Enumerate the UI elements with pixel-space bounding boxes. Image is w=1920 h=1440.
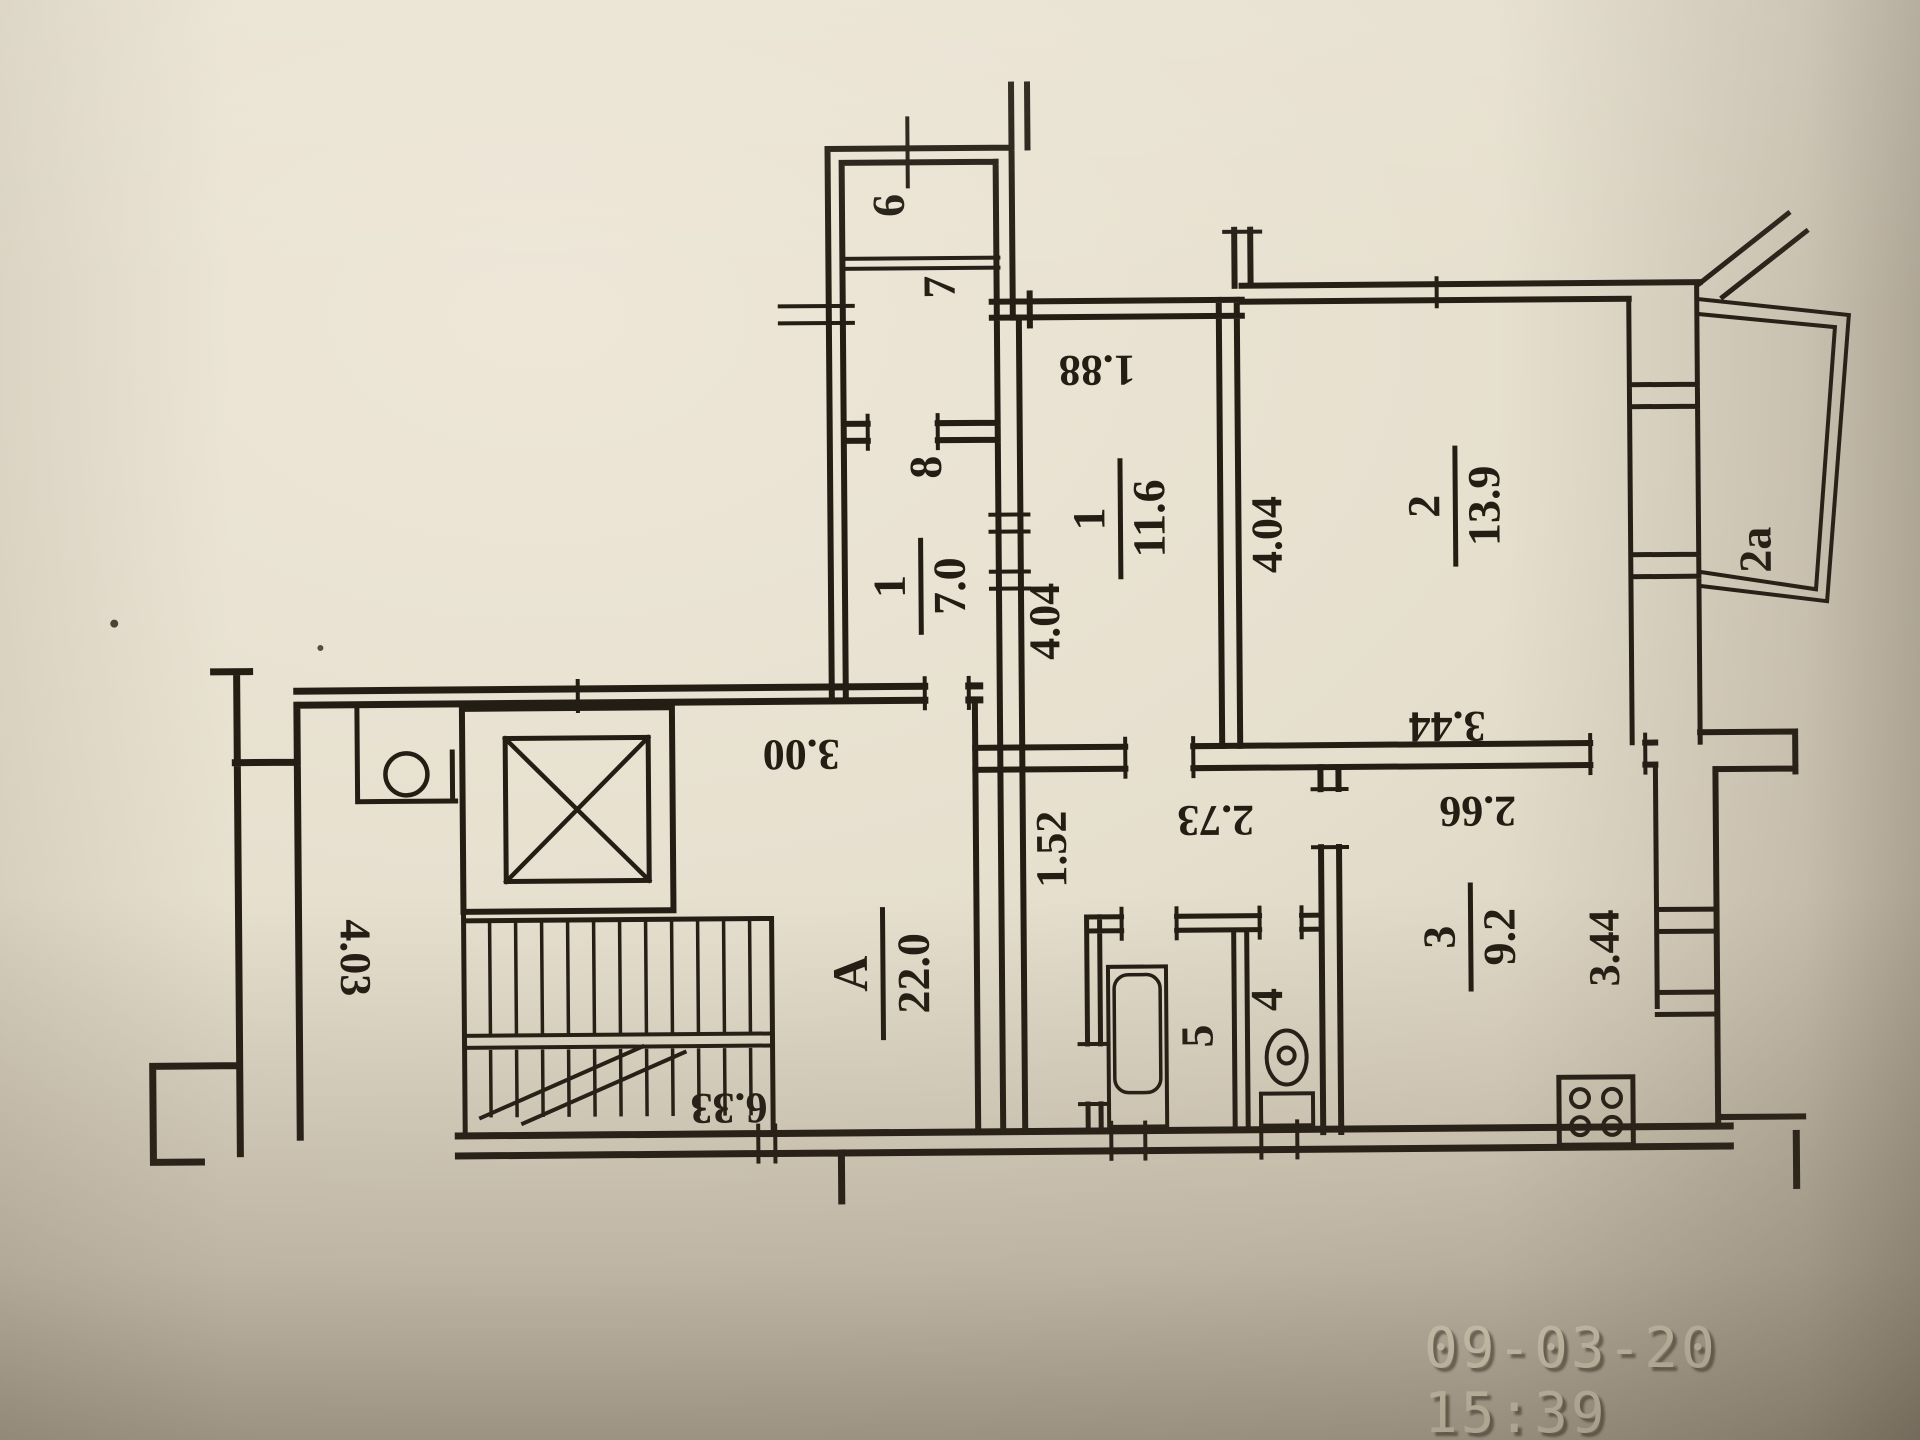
paper-speck: [317, 645, 323, 651]
dim-4-04-room1: 4.04: [1020, 583, 1070, 660]
floorplan-drawing: 6 7 8 1 7.0 1.88 1 11.6 4.04 2 13.9 4.04…: [0, 0, 1920, 1440]
toilet-tank-icon: [1261, 1093, 1313, 1125]
elevator-x-icon: [505, 737, 649, 881]
toilet-bowl-icon: [1266, 1030, 1306, 1084]
room-1-number: 1: [1063, 507, 1114, 530]
room2-walls: [971, 226, 1703, 770]
sanitary-walls: [1087, 915, 1324, 1131]
stove-burner-icon: [1603, 1089, 1621, 1107]
room-2-area-fraction: 2 13.9: [1398, 448, 1510, 565]
hall-1-number: 1: [864, 575, 915, 598]
room3-window: [1655, 764, 1717, 1014]
hall-A-area: 22.0: [888, 933, 940, 1014]
room-1-area-fraction: 1 11.6: [1063, 460, 1175, 577]
fraction-bar: [1470, 885, 1471, 989]
dim-3-44-room2: 3.44: [1408, 702, 1485, 752]
room-3-area: 9.2: [1473, 908, 1524, 966]
dim-6-33: 6.33: [690, 1084, 767, 1134]
stairs-direction-diagonals: [481, 1046, 686, 1124]
dim-1-52: 1.52: [1027, 811, 1077, 888]
camera-timestamp: 09-03-20 15:39: [1424, 1316, 1920, 1440]
room3-ticks: [1313, 789, 1347, 847]
room-8-label: 8: [900, 456, 951, 479]
wall-break-diagonals: [1698, 213, 1807, 297]
room-3-area-fraction: 3 9.2: [1413, 885, 1525, 990]
room-2-area: 13.9: [1458, 465, 1510, 546]
stairs-landing: [464, 1033, 772, 1047]
room-1-area: 11.6: [1123, 479, 1175, 557]
dim-2-66: 2.66: [1439, 787, 1516, 837]
room3-walls: [1320, 731, 1803, 1132]
stove-icon: [1559, 1077, 1634, 1146]
stove-burner-icon: [1571, 1089, 1589, 1107]
balcony-2a-label: 2a: [1730, 527, 1781, 573]
toilet-drain-icon: [1279, 1047, 1295, 1063]
hall-1-area: 7.0: [924, 557, 975, 615]
block-678-ticks: [573, 117, 1030, 711]
balcony-6-label: 6: [863, 194, 914, 217]
paper-speck: [110, 620, 118, 628]
bathtub-inner: [1114, 974, 1161, 1092]
entry-door-circle-icon: [385, 753, 427, 795]
room2-window: [1629, 286, 1701, 743]
hall-A-area-fraction: A 22.0: [821, 909, 939, 1038]
dim-3-44-room3: 3.44: [1580, 909, 1630, 986]
dim-4-03: 4.03: [331, 919, 381, 996]
bathtub-icon: [1108, 966, 1167, 1126]
room-2-number: 2: [1398, 495, 1449, 518]
hall-A-letter: A: [822, 956, 878, 993]
fraction-bar: [1120, 461, 1121, 577]
dim-3-00: 3.00: [763, 730, 840, 780]
room-3-number: 3: [1414, 926, 1465, 949]
dim-4-04-room2: 4.04: [1242, 496, 1292, 573]
fraction-bar: [1455, 448, 1456, 564]
room2-ticks: [1121, 229, 1645, 777]
room-7-label: 7: [914, 275, 965, 298]
fraction-bar: [882, 910, 883, 1038]
dim-2-73: 2.73: [1177, 796, 1254, 846]
dim-1-88: 1.88: [1059, 346, 1136, 396]
wc-4-label: 4: [1241, 988, 1292, 1011]
bath-5-label: 5: [1171, 1024, 1222, 1047]
hall-1-area-fraction: 1 7.0: [864, 540, 976, 633]
floorplan-photo: 6 7 8 1 7.0 1.88 1 11.6 4.04 2 13.9 4.04…: [0, 0, 1920, 1440]
fraction-bar: [921, 540, 922, 632]
